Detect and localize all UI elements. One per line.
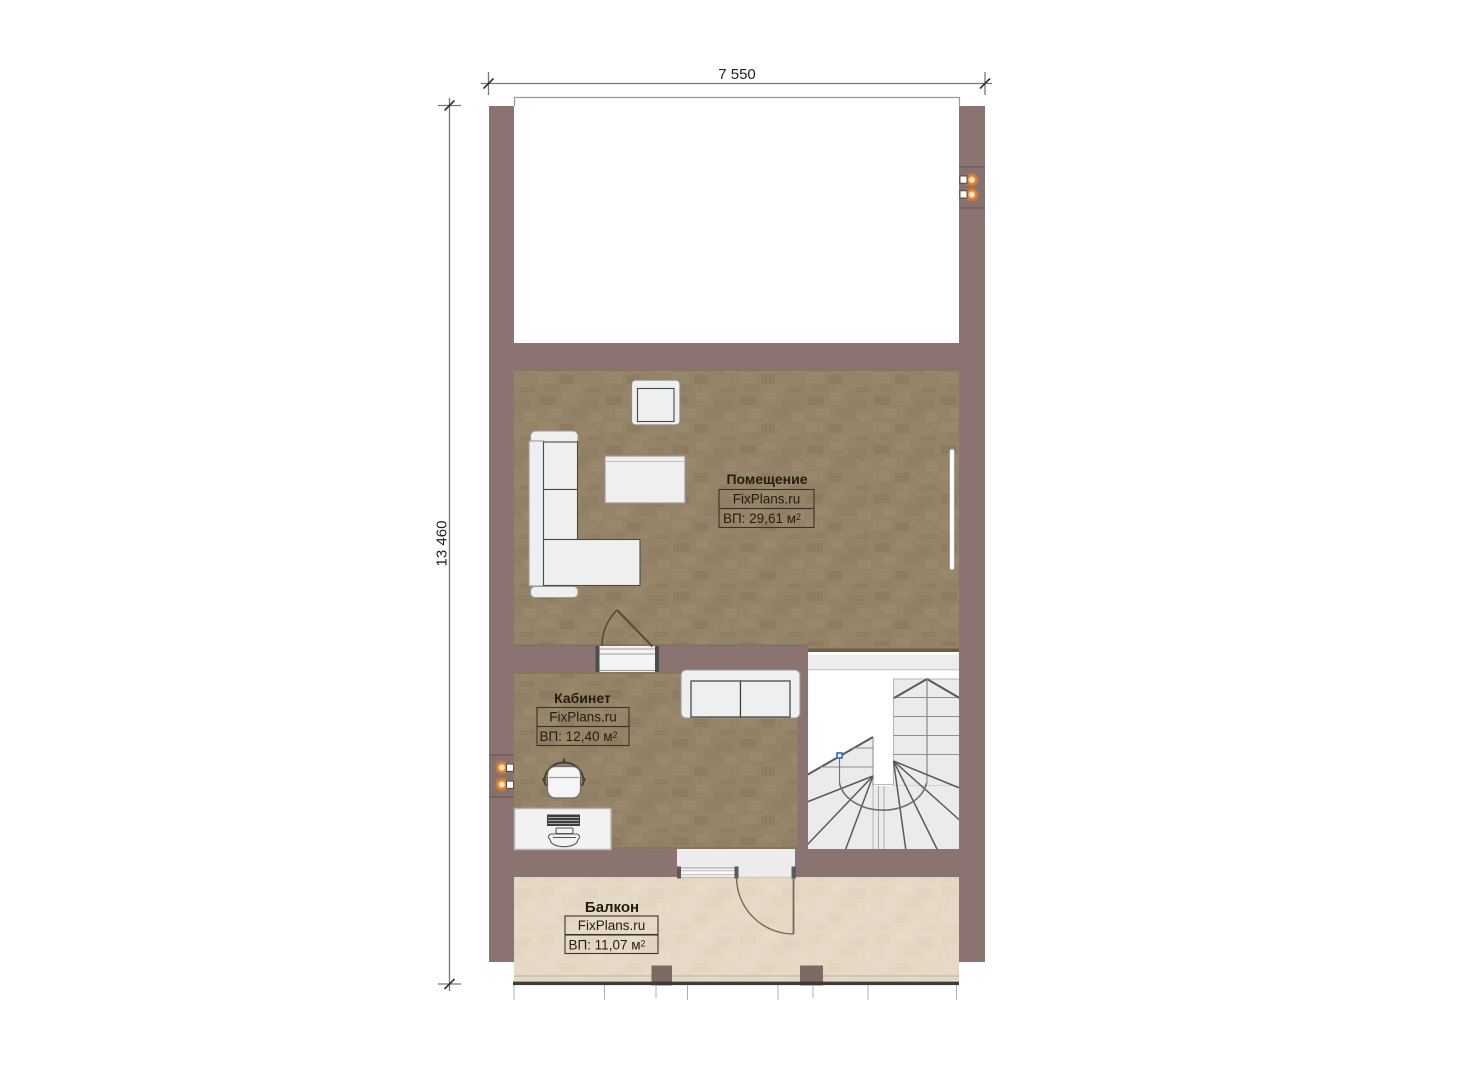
svg-text:7 550: 7 550 xyxy=(718,66,756,83)
svg-text:Кабинет: Кабинет xyxy=(554,690,611,706)
svg-text:ВП: 11,07 м2: ВП: 11,07 м2 xyxy=(568,938,645,953)
svg-text:13 460: 13 460 xyxy=(434,521,451,567)
svg-text:Помещение: Помещение xyxy=(726,471,807,487)
svg-text:FixPlans.ru: FixPlans.ru xyxy=(578,918,646,933)
svg-text:Балкон: Балкон xyxy=(585,899,639,916)
svg-text:ВП: 12,40 м2: ВП: 12,40 м2 xyxy=(539,729,617,744)
svg-text:FixPlans.ru: FixPlans.ru xyxy=(549,710,617,725)
svg-text:ВП: 29,61 м2: ВП: 29,61 м2 xyxy=(723,511,801,526)
svg-text:FixPlans.ru: FixPlans.ru xyxy=(733,492,801,507)
